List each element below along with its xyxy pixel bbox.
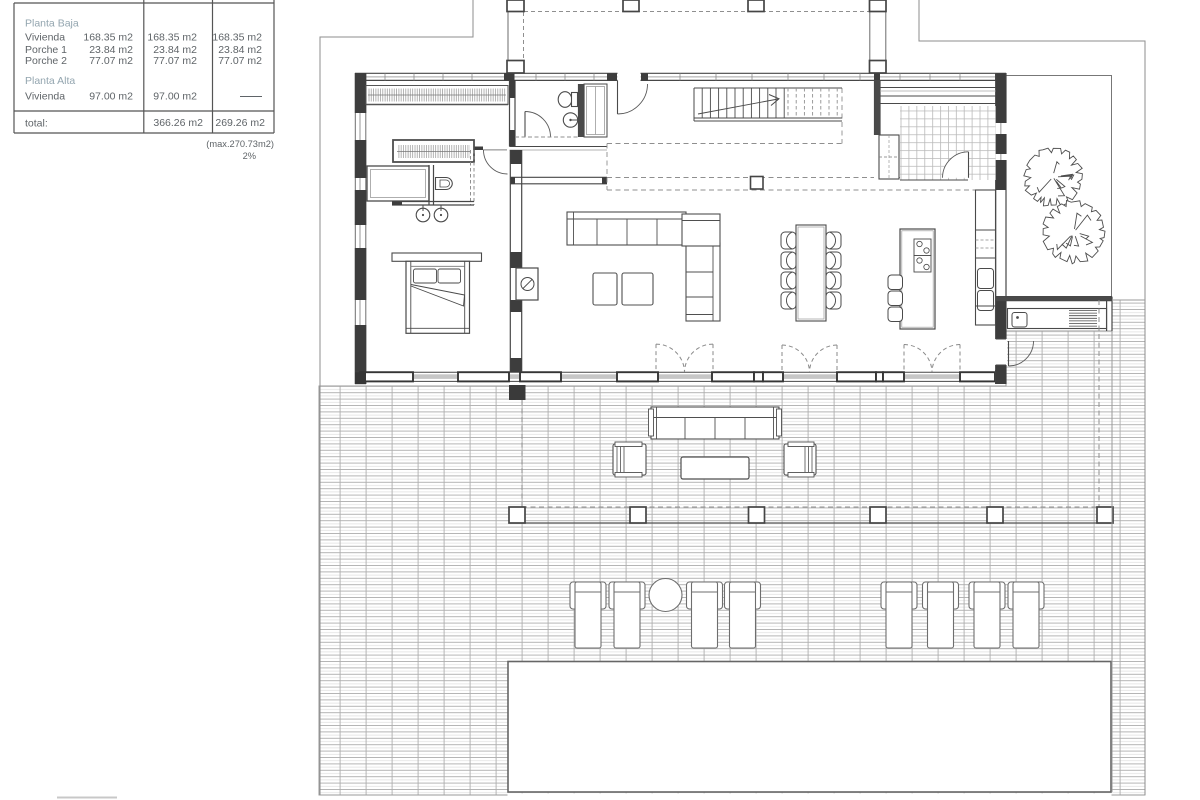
svg-text:77.07 m2: 77.07 m2 bbox=[89, 55, 133, 67]
svg-text:168.35 m2: 168.35 m2 bbox=[147, 32, 197, 44]
svg-text:(max.270.73m2): (max.270.73m2) bbox=[206, 139, 274, 149]
svg-text:Vivienda: Vivienda bbox=[25, 32, 65, 44]
svg-text:Planta Baja: Planta Baja bbox=[25, 18, 79, 30]
svg-text:97.00 m2: 97.00 m2 bbox=[153, 91, 197, 103]
svg-text:168.35 m2: 168.35 m2 bbox=[212, 32, 262, 44]
svg-text:269.26 m2: 269.26 m2 bbox=[215, 117, 265, 129]
svg-text:366.26 m2: 366.26 m2 bbox=[153, 117, 203, 129]
svg-text:Porche 2: Porche 2 bbox=[25, 55, 67, 67]
svg-text:77.07 m2: 77.07 m2 bbox=[218, 55, 262, 67]
svg-text:total:: total: bbox=[25, 118, 48, 130]
svg-text:2%: 2% bbox=[243, 151, 256, 161]
svg-text:Planta Alta: Planta Alta bbox=[25, 75, 75, 87]
svg-text:Vivienda: Vivienda bbox=[25, 91, 65, 103]
svg-text:97.00 m2: 97.00 m2 bbox=[89, 91, 133, 103]
svg-text:77.07 m2: 77.07 m2 bbox=[153, 55, 197, 67]
svg-text:168.35 m2: 168.35 m2 bbox=[83, 32, 133, 44]
